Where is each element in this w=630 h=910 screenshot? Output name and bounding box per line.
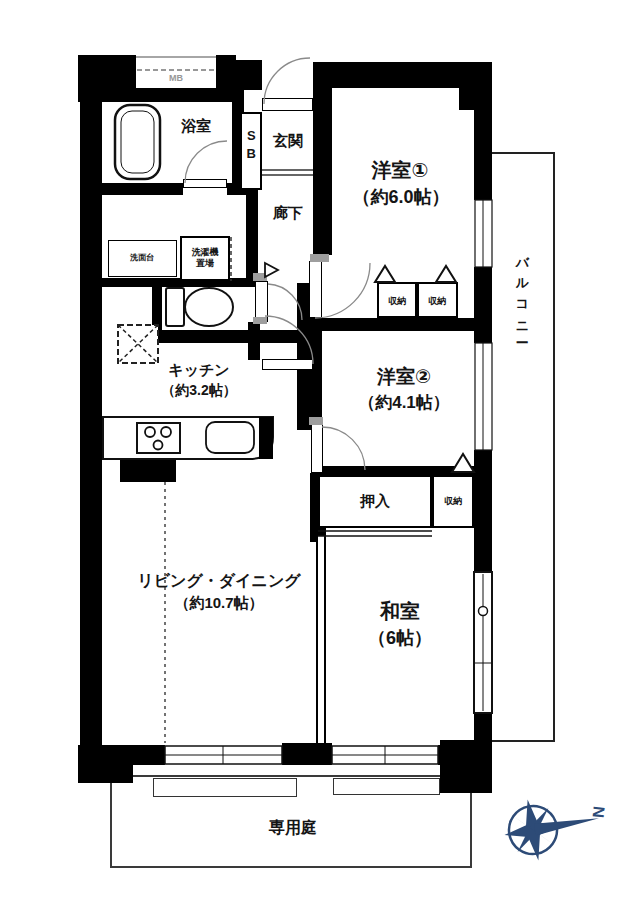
oshiire-label: 押入 xyxy=(360,492,390,510)
kitchen-size: （約3.2帖） xyxy=(161,382,236,399)
living-door-arc xyxy=(265,316,313,364)
balcony-door-knob xyxy=(479,607,488,616)
counter-end-wall xyxy=(259,417,273,459)
compass-rose xyxy=(499,788,604,866)
bathroom-door-arc xyxy=(185,141,227,183)
shoe-box-label: SB xyxy=(243,128,259,164)
toilet-bowl xyxy=(185,288,233,326)
compass-north-letter: N xyxy=(589,805,607,818)
western-room-2-label: 洋室② xyxy=(377,366,431,389)
entrance-door-arc xyxy=(264,58,310,104)
hallway-label: 廊下 xyxy=(273,204,303,222)
kitchen-sink xyxy=(206,422,254,453)
closet-1-label: 収納 xyxy=(388,296,406,307)
laundry-label: 洗濯機置場 xyxy=(190,247,220,269)
western-room-2-size: （約4.1帖） xyxy=(358,393,450,413)
kitchen-label: キッチン xyxy=(168,361,229,379)
stove-burner xyxy=(154,441,163,450)
closet-3-label: 収納 xyxy=(444,496,462,507)
washroom-door-arc xyxy=(268,284,302,320)
bathroom-label: 浴室 xyxy=(181,117,211,135)
stove-burner xyxy=(161,427,171,437)
fixtures-layer: N xyxy=(0,0,630,910)
folding-door-marker xyxy=(375,266,395,282)
western-room-1-door-arc xyxy=(315,263,370,318)
western-room-1-size: （約6.0帖） xyxy=(352,187,449,209)
folding-door-marker xyxy=(436,266,456,282)
meter-box-label: MB xyxy=(169,73,183,84)
japanese-room-size: （6帖） xyxy=(368,628,432,650)
toilet-tank xyxy=(166,288,184,326)
western-room-1-label: 洋室① xyxy=(372,158,429,182)
western-room-2-door-arc xyxy=(322,427,365,470)
bathtub xyxy=(115,105,160,179)
folding-door-marker xyxy=(452,454,474,472)
balcony-label: バルコニー xyxy=(514,248,530,342)
living-dining-size: （約10.7帖） xyxy=(174,594,263,612)
japanese-room-label: 和室 xyxy=(380,599,420,623)
vanity-label: 洗面台 xyxy=(130,253,154,263)
floorplan-canvas: N MB 浴室 SB 玄関 廊下 洋室① （約6.0帖） 収納 収納 バルコニー… xyxy=(0,0,630,910)
stove-burner xyxy=(145,427,155,437)
closet-2-label: 収納 xyxy=(428,296,446,307)
private-garden-label: 専用庭 xyxy=(269,818,317,837)
living-dining-label: リビング・ダイニング xyxy=(137,571,300,590)
direction-arrow-marker xyxy=(265,263,278,277)
entrance-label: 玄関 xyxy=(273,132,303,150)
